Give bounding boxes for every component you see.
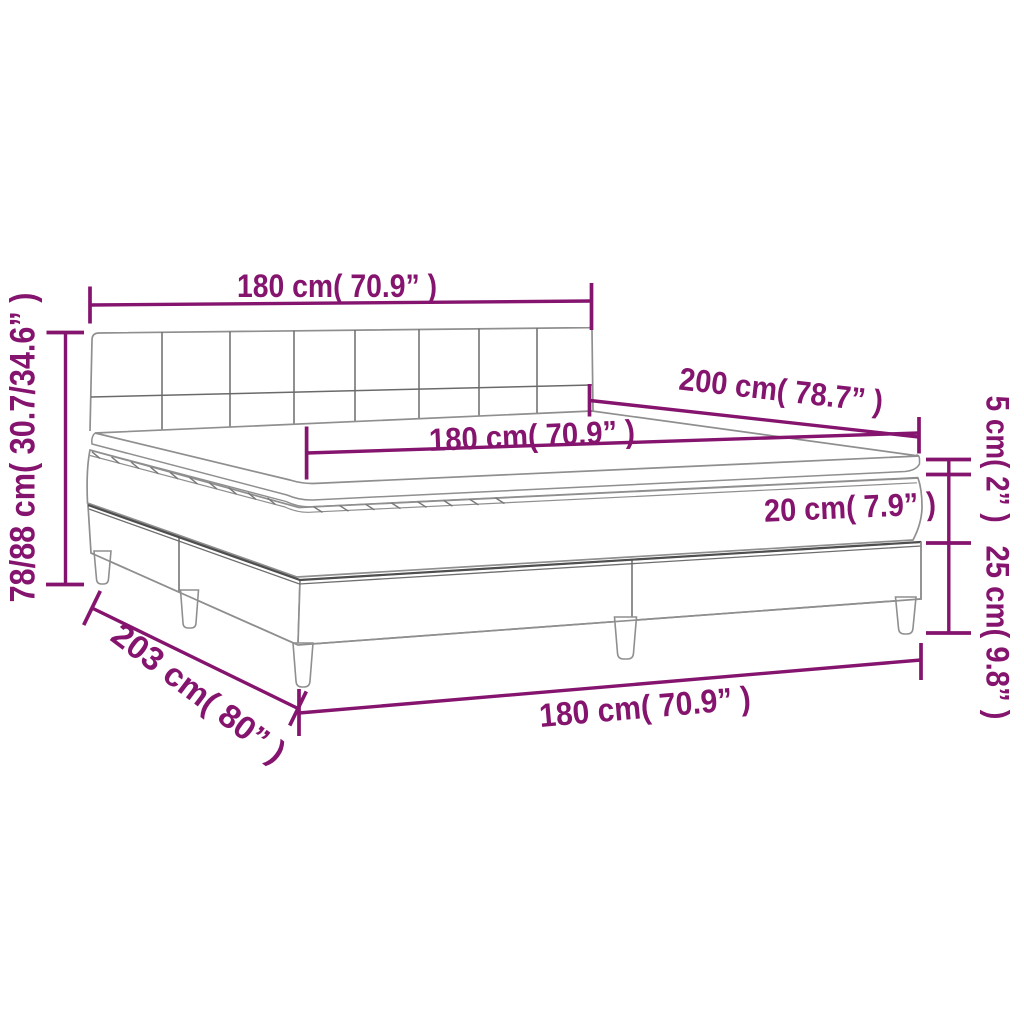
svg-text:180 cm( 70.9” ): 180 cm( 70.9” ) (237, 268, 437, 304)
svg-text:78/88 cm( 30.7/34.6” ): 78/88 cm( 30.7/34.6” ) (4, 293, 43, 603)
svg-text:25 cm( 9.8” ): 25 cm( 9.8” ) (980, 546, 1016, 720)
svg-text:5 cm( 2” ): 5 cm( 2” ) (980, 396, 1016, 523)
svg-text:20 cm( 7.9” ): 20 cm( 7.9” ) (763, 485, 936, 528)
